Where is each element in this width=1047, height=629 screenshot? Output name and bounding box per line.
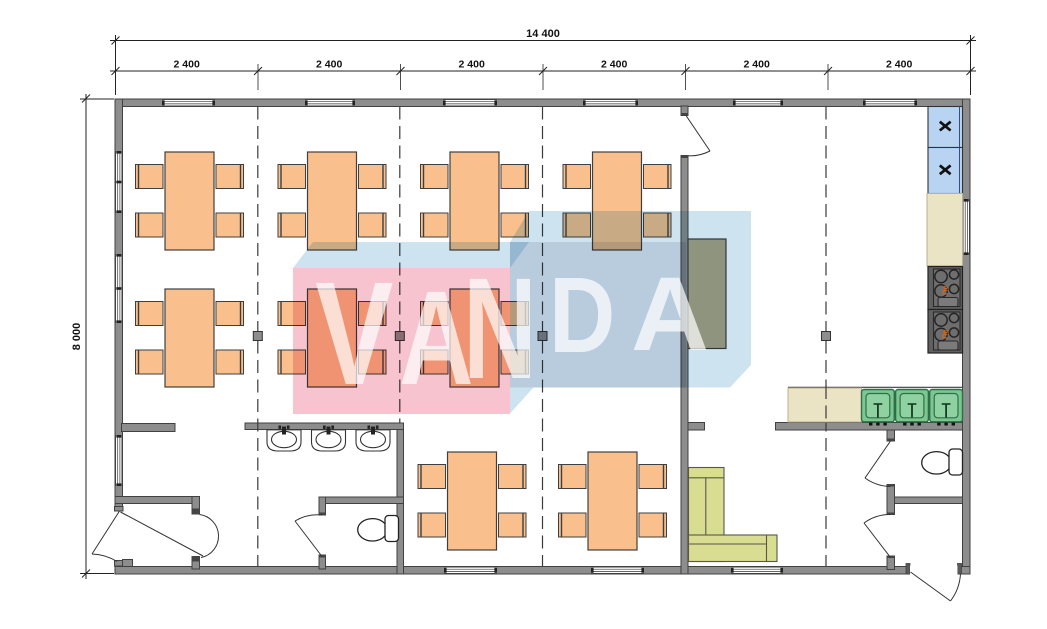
svg-text:Пе: Пе (941, 285, 950, 295)
svg-text:D: D (549, 255, 615, 376)
svg-text:2 400: 2 400 (886, 59, 912, 71)
svg-text:2 400: 2 400 (601, 59, 627, 71)
svg-text:Пе: Пе (941, 329, 950, 339)
svg-text:2 400: 2 400 (316, 59, 342, 71)
svg-text:V: V (315, 251, 393, 416)
svg-text:2 400: 2 400 (174, 59, 200, 71)
svg-text:2 400: 2 400 (744, 59, 770, 71)
svg-text:14 400: 14 400 (526, 28, 560, 40)
svg-text:N: N (463, 249, 537, 409)
svg-text:A: A (631, 255, 709, 372)
svg-text:8 000: 8 000 (71, 323, 83, 351)
svg-text:2 400: 2 400 (459, 59, 485, 71)
